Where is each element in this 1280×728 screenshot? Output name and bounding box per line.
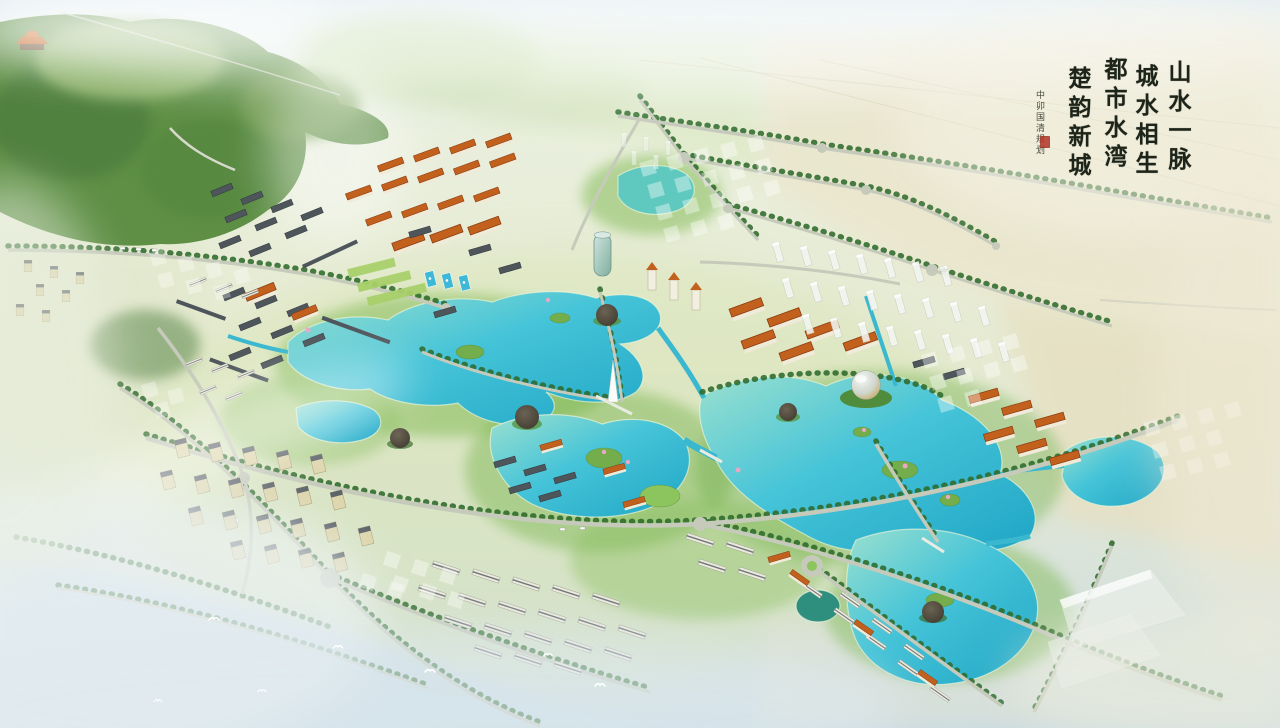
roundabout-green [807, 561, 817, 571]
glass-cylinder-tower [594, 232, 611, 276]
masterplan-rendering: 山水一脉 城水相生 都市水湾 楚韵新城 中卯国清规划 [0, 0, 1280, 728]
aerial-scene [0, 0, 1280, 728]
